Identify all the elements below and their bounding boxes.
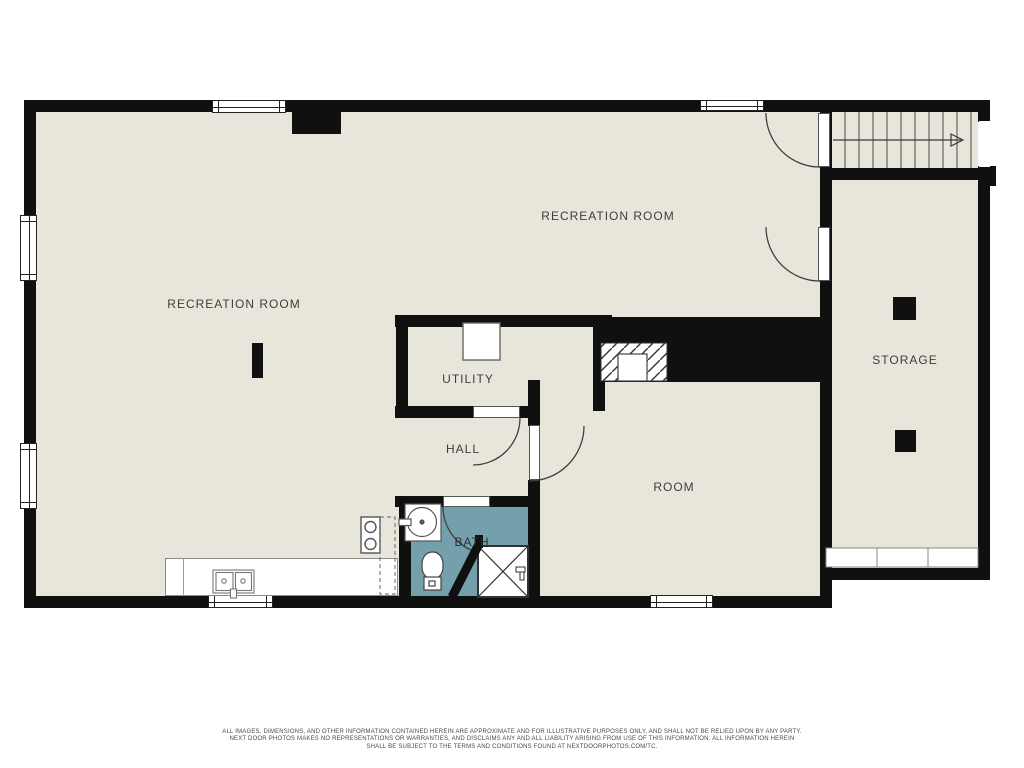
counter-divider	[183, 558, 184, 596]
window-symbol	[650, 595, 713, 608]
window-symbol	[208, 595, 273, 608]
floor-plan: RECREATION ROOM RECREATION ROOM UTILITY …	[0, 0, 1024, 768]
wall-segment	[593, 323, 605, 411]
room-label-hall: HALL	[446, 442, 480, 456]
wall-segment	[528, 480, 540, 608]
wall-segment	[978, 166, 990, 580]
wall-segment	[978, 100, 990, 122]
door-leaf	[818, 113, 830, 167]
wall-segment	[24, 100, 990, 112]
door-leaf	[473, 406, 520, 418]
support-column	[893, 297, 916, 320]
disclaimer-line-2: NEXT DOOR PHOTOS MAKES NO REPRESENTATION…	[0, 736, 1024, 743]
support-column	[252, 343, 263, 378]
stairwell-floor	[832, 112, 978, 168]
wall-segment	[395, 315, 612, 327]
support-column	[895, 430, 916, 452]
wall-segment	[990, 166, 996, 186]
door-leaf	[443, 496, 490, 507]
room-label-utility: UTILITY	[442, 372, 494, 386]
wall-segment	[832, 168, 990, 180]
bathroom-floor	[411, 507, 528, 596]
disclaimer-line-3: SHALL BE SUBJECT TO THE TERMS AND CONDIT…	[0, 744, 1024, 751]
window-symbol	[700, 100, 764, 111]
door-leaf	[818, 227, 830, 281]
room-label-storage: STORAGE	[872, 353, 937, 367]
stair-exit-opening	[979, 121, 990, 167]
door-leaf	[529, 425, 540, 480]
storage-floor	[832, 180, 978, 568]
window-symbol	[20, 443, 37, 509]
wall-segment	[396, 315, 408, 418]
wall-bump	[292, 112, 341, 134]
wall-segment	[593, 317, 826, 382]
room-label-recreation-top: RECREATION ROOM	[541, 209, 674, 223]
room-label-bath: BATH	[454, 535, 489, 549]
wall-segment	[399, 496, 411, 608]
window-symbol	[212, 100, 286, 113]
window-symbol	[20, 215, 37, 281]
disclaimer-line-1: ALL IMAGES, DIMENSIONS, AND OTHER INFORM…	[0, 729, 1024, 736]
room-label-room: ROOM	[653, 480, 694, 494]
room-label-recreation-left: RECREATION ROOM	[167, 297, 300, 311]
wall-segment	[528, 380, 540, 426]
disclaimer-text: ALL IMAGES, DIMENSIONS, AND OTHER INFORM…	[0, 729, 1024, 751]
kitchen-counter	[165, 558, 398, 596]
wall-segment	[24, 100, 36, 608]
wall-segment	[820, 568, 990, 580]
